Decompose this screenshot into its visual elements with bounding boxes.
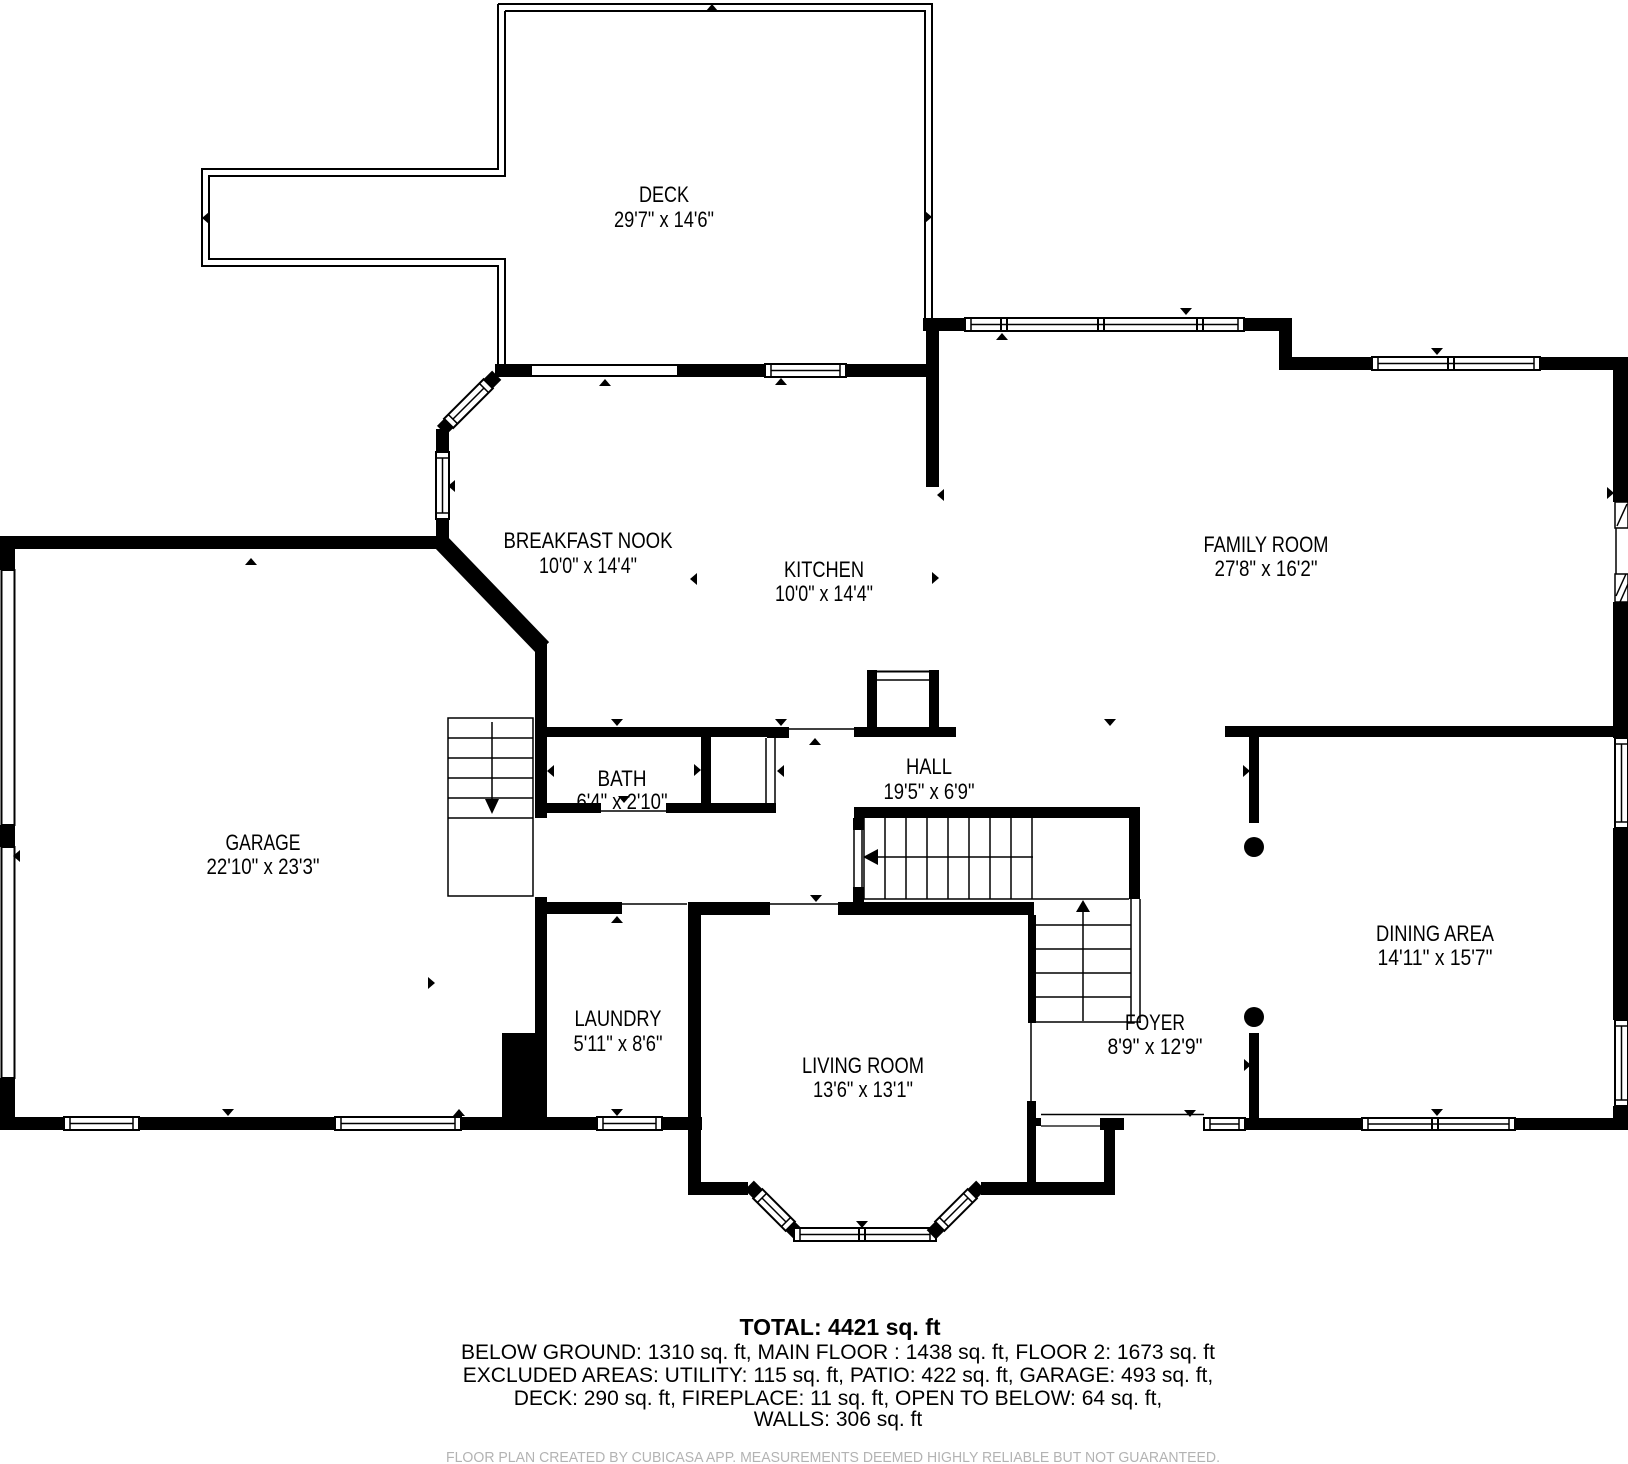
svg-text:10'0" x 14'4": 10'0" x 14'4" [539, 553, 637, 578]
svg-text:HALL: HALL [906, 754, 952, 779]
svg-text:FOYER: FOYER [1125, 1010, 1185, 1035]
svg-text:TOTAL: 4421 sq. ft: TOTAL: 4421 sq. ft [739, 1314, 940, 1340]
svg-text:GARAGE: GARAGE [226, 830, 301, 855]
svg-text:13'6" x 13'1": 13'6" x 13'1" [813, 1077, 913, 1102]
svg-text:DECK: DECK [639, 182, 689, 207]
svg-text:EXCLUDED AREAS: UTILITY: 115 s: EXCLUDED AREAS: UTILITY: 115 sq. ft, PAT… [463, 1364, 1213, 1387]
svg-text:FAMILY ROOM: FAMILY ROOM [1204, 532, 1329, 557]
svg-text:DINING AREA: DINING AREA [1376, 921, 1494, 946]
svg-text:BELOW GROUND: 1310 sq. ft, MAI: BELOW GROUND: 1310 sq. ft, MAIN FLOOR : … [461, 1341, 1215, 1364]
svg-text:10'0" x 14'4": 10'0" x 14'4" [775, 581, 873, 606]
svg-text:KITCHEN: KITCHEN [784, 557, 864, 582]
svg-text:27'8" x 16'2": 27'8" x 16'2" [1215, 556, 1318, 581]
svg-text:22'10" x 23'3": 22'10" x 23'3" [207, 854, 320, 879]
svg-text:6'4" x 2'10": 6'4" x 2'10" [577, 789, 668, 814]
svg-text:BREAKFAST NOOK: BREAKFAST NOOK [504, 528, 673, 553]
svg-text:8'9" x 12'9": 8'9" x 12'9" [1108, 1034, 1203, 1059]
svg-text:LIVING ROOM: LIVING ROOM [802, 1053, 924, 1078]
svg-text:WALLS: 306 sq. ft: WALLS: 306 sq. ft [754, 1408, 923, 1431]
svg-text:DECK: 290 sq. ft, FIREPLACE: 1: DECK: 290 sq. ft, FIREPLACE: 11 sq. ft, … [514, 1387, 1163, 1410]
svg-text:5'11" x 8'6": 5'11" x 8'6" [574, 1031, 663, 1056]
svg-text:FLOOR PLAN CREATED BY CUBICASA: FLOOR PLAN CREATED BY CUBICASA APP. MEAS… [446, 1450, 1220, 1464]
svg-text:BATH: BATH [598, 766, 647, 791]
svg-text:19'5" x 6'9": 19'5" x 6'9" [884, 779, 975, 804]
svg-text:14'11" x 15'7": 14'11" x 15'7" [1378, 945, 1493, 970]
svg-text:LAUNDRY: LAUNDRY [575, 1006, 662, 1031]
svg-text:29'7" x 14'6": 29'7" x 14'6" [614, 207, 714, 232]
